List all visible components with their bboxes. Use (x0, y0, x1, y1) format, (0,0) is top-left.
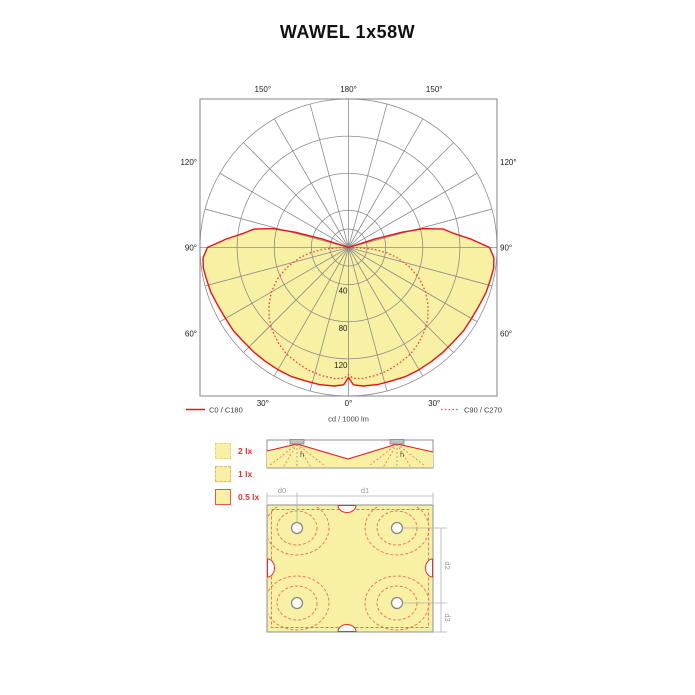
legend-label-c0: C0 / C180 (209, 406, 243, 415)
polar-angle-label: 90° (500, 244, 512, 253)
polar-angle-label: 30° (428, 399, 440, 408)
lux-legend-item: 1 lx (215, 466, 335, 489)
polar-intensity-chart: 4080120180°150°150°120°120°90°90°60°60°3… (180, 85, 516, 408)
diagram-canvas: 4080120180°150°150°120°120°90°90°60°60°3… (0, 0, 695, 695)
dim-label-d1: d1 (361, 486, 369, 495)
lux-legend: 2 lx 1 lx 0.5 lx (215, 443, 335, 512)
polar-angle-label: 60° (500, 330, 512, 339)
section-luminaire (390, 440, 404, 445)
polar-radial-label: 120 (334, 361, 348, 370)
polar-radial-label: 40 (339, 287, 348, 296)
lux-legend-item: 0.5 lx (215, 489, 335, 512)
polar-angle-label: 30° (257, 399, 269, 408)
dim-label-d2: d2 (443, 561, 452, 569)
polar-angle-label: 180° (340, 85, 357, 94)
polar-angle-label: 60° (185, 330, 197, 339)
lux-label-2lx: 2 lx (238, 446, 252, 456)
legend-label-c90: C90 / C270 (464, 406, 502, 415)
polar-radial-label: 80 (339, 324, 348, 333)
lux-label-1lx: 1 lx (238, 469, 252, 479)
polar-angle-label: 120° (500, 158, 517, 167)
dim-label-d3: d3 (443, 613, 452, 621)
photometric-datasheet: WAWEL 1x58W 4080120180°150°150°120°120°9… (0, 0, 695, 695)
section-height-label: h (400, 450, 404, 459)
polar-legend: C0 / C180 C90 / C270 cd / 1000 lm (186, 406, 502, 424)
plan-room-outline (267, 505, 433, 632)
lux-swatch-1lx (215, 466, 231, 482)
polar-angle-label: 120° (180, 158, 197, 167)
polar-angle-label: 90° (185, 244, 197, 253)
polar-angle-label: 0° (345, 399, 353, 408)
lux-label-05lx: 0.5 lx (238, 492, 259, 502)
lux-swatch-2lx (215, 443, 231, 459)
polar-angle-label: 150° (255, 85, 272, 94)
lux-swatch-05lx (215, 489, 231, 505)
lux-legend-item: 2 lx (215, 443, 335, 466)
polar-unit-label: cd / 1000 lm (328, 415, 369, 424)
polar-angle-label: 150° (426, 85, 443, 94)
